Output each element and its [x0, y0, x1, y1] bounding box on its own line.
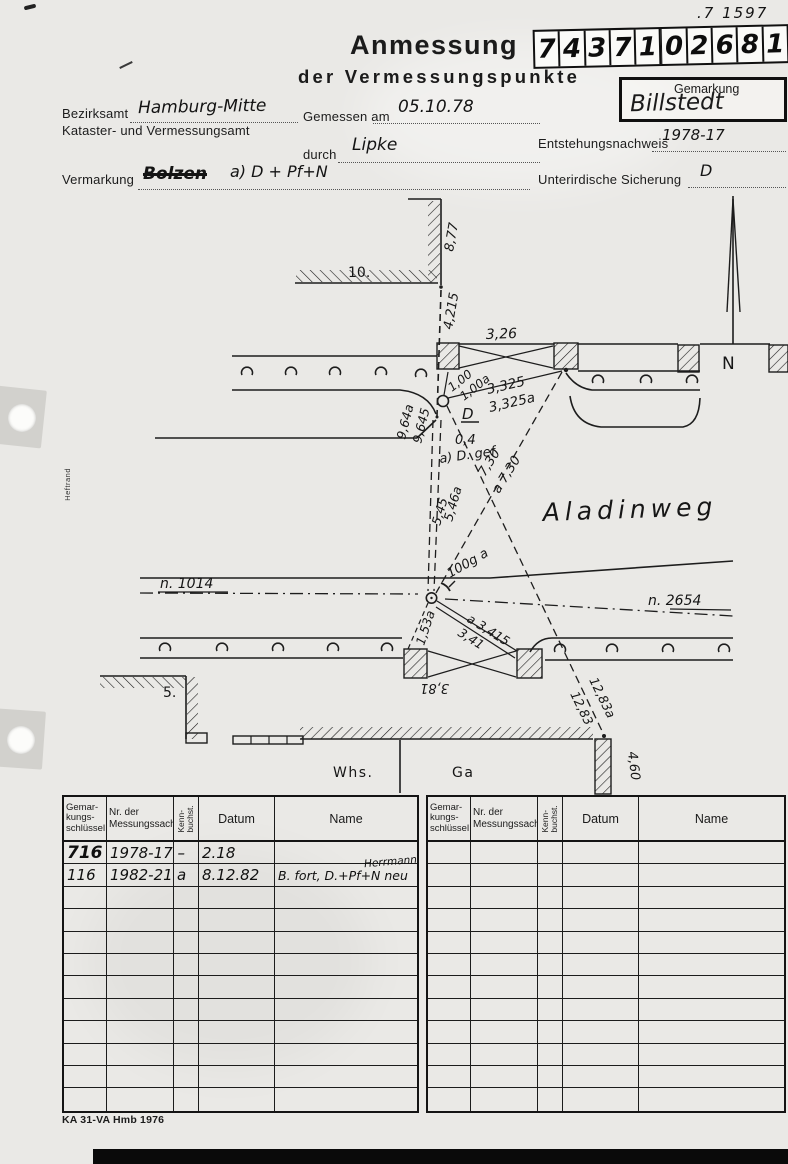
table-cell-empty	[174, 954, 199, 975]
header-messungssache: Nr. der Messungssache	[471, 797, 538, 840]
durch-underline	[338, 161, 540, 163]
table-row-empty	[428, 999, 784, 1021]
dim-4215: 4,215	[441, 291, 462, 330]
gemarkung-value: Billstedt	[630, 89, 724, 117]
form-number-footer: KA 31-VA Hmb 1976	[62, 1114, 164, 1126]
form-title-line2: der Vermessungspunkte	[298, 66, 580, 88]
table-row-empty	[64, 954, 417, 976]
table-cell-empty	[639, 864, 784, 885]
header-gemarkungsschluessel: Gemar- kungs- schlüssel	[428, 797, 471, 840]
table-cell-empty	[563, 932, 639, 953]
table-cell-empty	[428, 864, 471, 885]
table-cell-empty	[471, 887, 538, 908]
table-cell-empty	[639, 976, 784, 997]
table-cell-empty	[563, 1044, 639, 1065]
table-cell-empty	[563, 1021, 639, 1042]
table-cell-empty	[428, 1021, 471, 1042]
table-cell-empty	[64, 1066, 107, 1087]
table-cell-empty	[639, 887, 784, 908]
table-cell-empty	[428, 887, 471, 908]
table-cell-empty	[471, 999, 538, 1020]
table-cell-empty	[107, 887, 174, 908]
table-cell-empty	[64, 954, 107, 975]
table-row-empty	[64, 999, 417, 1021]
table-cell-empty	[174, 1066, 199, 1087]
note-aD-gef: a) D. gef	[438, 444, 498, 467]
dim-3325a: 3,325a	[487, 390, 536, 416]
table-cell-empty	[107, 999, 174, 1020]
table-row-empty	[428, 864, 784, 886]
table-cell-empty	[199, 887, 275, 908]
digit-cell: 4	[560, 31, 586, 67]
table-row-empty	[428, 842, 784, 864]
table-cell-empty	[639, 932, 784, 953]
table-cell-empty	[107, 932, 174, 953]
table-row-empty	[64, 1066, 417, 1088]
table-cell-empty	[174, 887, 199, 908]
table-cell-empty	[174, 1088, 199, 1110]
table-cell-empty	[639, 909, 784, 930]
house-number-10: 10.	[348, 265, 370, 281]
table-row-empty	[64, 1044, 417, 1066]
table-row-empty	[428, 1088, 784, 1110]
table-cell-empty	[199, 976, 275, 997]
digit-cell: 1	[763, 26, 787, 62]
header-name: Name	[275, 797, 417, 840]
durch-label: durch	[303, 147, 337, 162]
table-cell-empty	[275, 932, 417, 953]
cell-name: B. fort, D.+Pf+N neu Herrmann	[275, 864, 417, 885]
table-row-empty	[428, 1044, 784, 1066]
table-cell-empty	[639, 1088, 784, 1110]
table-cell-empty	[639, 1066, 784, 1087]
table-cell-empty	[199, 1044, 275, 1065]
house-number-5: 5.	[163, 685, 176, 701]
table-cell-empty	[174, 932, 199, 953]
dim-9645: 9,645	[409, 406, 432, 444]
cell-datum: 8.12.82	[199, 864, 275, 885]
header-gemarkungsschluessel: Gemar- kungs- schlüssel	[64, 797, 107, 840]
table-cell-empty	[64, 909, 107, 930]
table-cell-empty	[639, 954, 784, 975]
bezirksamt-value: Hamburg-Mitte	[138, 96, 267, 118]
digit-cell: 3	[585, 30, 611, 66]
digit-cell: 1	[636, 29, 662, 65]
table-cell-empty	[199, 1021, 275, 1042]
dim-153a: 1,53a	[413, 609, 438, 647]
dim-546a: 5,46a	[440, 485, 464, 523]
cell-datum: 2.18	[199, 842, 275, 863]
table-cell-empty	[563, 887, 639, 908]
building-whs-label: Whs.	[333, 765, 373, 781]
table-cell-empty	[199, 1066, 275, 1087]
table-cell-empty	[199, 932, 275, 953]
mark-D: D	[462, 405, 474, 423]
cell-sache: 1982-21	[107, 864, 174, 885]
table-cell-empty	[428, 976, 471, 997]
scan-speck	[24, 4, 37, 11]
dim-3415a: a 3,415	[464, 611, 512, 649]
header-kennbuchstabe: Kenn-buchst.	[174, 797, 199, 840]
entstehungsnachweis-value: 1978-17	[662, 126, 725, 144]
table-cell-empty	[64, 999, 107, 1020]
table-cell-empty	[428, 1088, 471, 1110]
dim-1283a: 12,83a	[586, 675, 619, 721]
table-row-empty	[428, 976, 784, 998]
cell-kenn	[174, 842, 199, 863]
table-cell-empty	[64, 932, 107, 953]
table-cell-empty	[538, 954, 563, 975]
table-row-empty	[64, 1088, 417, 1110]
table-cell-empty	[538, 976, 563, 997]
table-cell-empty	[428, 1044, 471, 1065]
table-cell-empty	[471, 1021, 538, 1042]
unterirdische-sicherung-value: D	[700, 161, 712, 180]
header-kennbuchstabe: Kenn-buchst.	[538, 797, 563, 840]
table-cell-empty	[199, 954, 275, 975]
table-cell-empty	[174, 1044, 199, 1065]
table-cell-empty	[199, 999, 275, 1020]
margin-label: Heftrand	[63, 468, 72, 501]
header-datum: Datum	[199, 797, 275, 840]
table-cell-empty	[471, 909, 538, 930]
dim-341: 3,41	[455, 625, 487, 652]
dim-460: 4,60	[624, 751, 642, 782]
table-row-empty	[64, 909, 417, 931]
punch-hole-bottom	[7, 726, 35, 754]
table-cell-empty	[275, 1066, 417, 1087]
scanned-survey-form: Heftrand Anmessung der Vermessungspunkte…	[0, 0, 788, 1164]
table-header: Gemar- kungs- schlüssel Nr. der Messungs…	[64, 797, 417, 842]
cell-kenn: a	[174, 864, 199, 885]
table-cell-empty	[275, 1088, 417, 1110]
table-row-empty	[428, 932, 784, 954]
table-cell-empty	[471, 1044, 538, 1065]
table-row-empty	[428, 1066, 784, 1088]
table-cell-empty	[538, 1066, 563, 1087]
table-cell-empty	[471, 864, 538, 885]
dim-964a: 9,64a	[393, 403, 416, 441]
table-cell-empty	[471, 954, 538, 975]
entstehungsnachweis-underline	[652, 150, 786, 152]
durch-value: Lipke	[352, 135, 397, 155]
digit-cell: 7	[611, 30, 637, 66]
table-cell-empty	[471, 976, 538, 997]
table-header: Gemar- kungs- schlüssel Nr. der Messungs…	[428, 797, 784, 842]
table-cell-empty	[199, 1088, 275, 1110]
amt-label-line2: Kataster- und Vermessungsamt	[62, 123, 250, 138]
table-row-empty	[64, 1021, 417, 1043]
table-cell-empty	[64, 1044, 107, 1065]
table-cell-empty	[107, 954, 174, 975]
table-cell-empty	[538, 1021, 563, 1042]
history-table-right: Gemar- kungs- schlüssel Nr. der Messungs…	[426, 795, 786, 1113]
vermarkung-value: a) D + Pf+N	[230, 162, 328, 181]
scan-edge-bar	[93, 1149, 788, 1164]
table-row-empty	[428, 1021, 784, 1043]
table-cell-empty	[428, 842, 471, 863]
vermarkung-label: Vermarkung	[62, 172, 134, 187]
table-cell-empty	[275, 1044, 417, 1065]
dim-381: 3,81	[420, 680, 449, 695]
dim-730a: a 7,30	[490, 453, 524, 496]
gemessen-am-underline	[373, 122, 540, 124]
table-cell-empty	[538, 842, 563, 863]
vermarkung-struck-value: Bolzen	[143, 164, 207, 184]
table-cell-empty	[275, 999, 417, 1020]
table-row-empty	[428, 909, 784, 931]
table-cell-empty	[563, 864, 639, 885]
kennzahl-number-strip: 7 4 3 7 1 0 2 6 8 1	[533, 24, 788, 69]
table-cell-empty	[538, 909, 563, 930]
handwritten-corner-note: .7 1597	[697, 4, 768, 22]
dim-04: 0,4	[455, 433, 476, 448]
table-cell-empty	[275, 954, 417, 975]
table-cell-empty	[428, 909, 471, 930]
table-cell-empty	[538, 1044, 563, 1065]
digit-cell: 2	[687, 28, 713, 64]
table-cell-empty	[174, 1021, 199, 1042]
table-cell-empty	[275, 909, 417, 930]
table-cell-empty	[428, 1066, 471, 1087]
gemarkung-box: Gemarkung Billstedt	[619, 77, 787, 122]
dim-100: 1,00	[445, 367, 475, 395]
punch-hole-top	[8, 404, 36, 432]
table-cell-empty	[64, 976, 107, 997]
table-cell-empty	[64, 1088, 107, 1110]
table-row-empty	[64, 932, 417, 954]
table-cell-empty	[639, 999, 784, 1020]
table-cell-empty	[538, 932, 563, 953]
table-cell-empty	[563, 954, 639, 975]
cell-schluessel: 716	[64, 842, 107, 863]
table-cell-empty	[538, 864, 563, 885]
table-cell-empty	[639, 1021, 784, 1042]
form-title-line1: Anmessung	[350, 30, 518, 61]
table-cell-empty	[174, 976, 199, 997]
table-cell-empty	[64, 887, 107, 908]
digit-cell: 7	[535, 31, 561, 67]
table-cell-empty	[538, 1088, 563, 1110]
unterirdische-sicherung-underline	[688, 186, 786, 188]
table-body	[428, 842, 784, 1111]
header-datum: Datum	[563, 797, 639, 840]
dim-326: 3,26	[486, 326, 518, 343]
angle-100g: 100g a	[445, 546, 492, 582]
digit-cell: 6	[713, 27, 739, 63]
table-cell-empty	[107, 1088, 174, 1110]
table-cell-empty	[428, 954, 471, 975]
table-cell-empty	[174, 909, 199, 930]
table-cell-empty	[471, 932, 538, 953]
building-ga-label: Ga	[452, 765, 474, 781]
table-cell-empty	[563, 1066, 639, 1087]
table-row-empty	[64, 976, 417, 998]
table-body: 716 1978-17 – 2.18 116 1982-21 a 8.12.82…	[64, 842, 417, 1111]
street-name: Aladinweg	[540, 492, 718, 527]
cell-schluessel: 116	[64, 864, 107, 885]
table-cell-empty	[471, 842, 538, 863]
table-row-empty	[64, 887, 417, 909]
table-cell-empty	[471, 1066, 538, 1087]
table-cell-empty	[107, 1021, 174, 1042]
table-cell-empty	[471, 1088, 538, 1110]
point-number-right: n. 2654	[648, 593, 701, 609]
table-cell-empty	[563, 1088, 639, 1110]
table-cell-empty	[538, 999, 563, 1020]
vermarkung-underline	[138, 188, 530, 190]
header-name: Name	[639, 797, 784, 840]
header-messungssache: Nr. der Messungssache	[107, 797, 174, 840]
table-cell-empty	[563, 842, 639, 863]
bezirksamt-label: Bezirksamt	[62, 106, 128, 121]
table-row-empty	[428, 954, 784, 976]
scan-mark	[119, 61, 132, 69]
table-cell-empty	[563, 909, 639, 930]
table-cell-empty	[639, 842, 784, 863]
unterirdische-sicherung-label: Unterirdische Sicherung	[538, 172, 681, 187]
table-cell-empty	[428, 932, 471, 953]
dim-100a: 1,00a	[457, 371, 492, 403]
table-cell-empty	[639, 1044, 784, 1065]
table-cell-empty	[275, 887, 417, 908]
north-label: N	[722, 354, 735, 374]
table-cell-empty	[428, 999, 471, 1020]
history-table-left: Gemar- kungs- schlüssel Nr. der Messungs…	[62, 795, 419, 1113]
table-cell-empty	[107, 1066, 174, 1087]
table-cell-empty	[107, 1044, 174, 1065]
point-number-left: n. 1014	[160, 576, 213, 592]
dim-1283: 12,83	[567, 689, 596, 728]
gemessen-am-value: 05.10.78	[398, 97, 474, 117]
table-cell-empty	[107, 976, 174, 997]
table-cell-empty	[107, 909, 174, 930]
table-cell-empty	[275, 1021, 417, 1042]
table-cell-empty	[563, 999, 639, 1020]
dim-545: 5,45	[428, 496, 450, 527]
table-cell-empty	[174, 999, 199, 1020]
table-cell-empty	[563, 976, 639, 997]
digit-cell: 0	[661, 28, 688, 64]
table-cell-empty	[199, 909, 275, 930]
table-row-empty	[428, 887, 784, 909]
table-cell-empty	[64, 1021, 107, 1042]
table-cell-empty	[275, 976, 417, 997]
table-row: 116 1982-21 a 8.12.82 B. fort, D.+Pf+N n…	[64, 864, 417, 886]
cell-sache: 1978-17 –	[107, 842, 174, 863]
table-cell-empty	[538, 887, 563, 908]
dim-877: 8,77	[442, 221, 462, 253]
entstehungsnachweis-label: Entstehungsnachweis	[538, 136, 668, 151]
digit-cell: 8	[738, 27, 764, 63]
dim-3325: 3,325	[485, 374, 526, 398]
dim-730: 7,30	[476, 447, 504, 480]
curb-marks	[160, 367, 730, 652]
